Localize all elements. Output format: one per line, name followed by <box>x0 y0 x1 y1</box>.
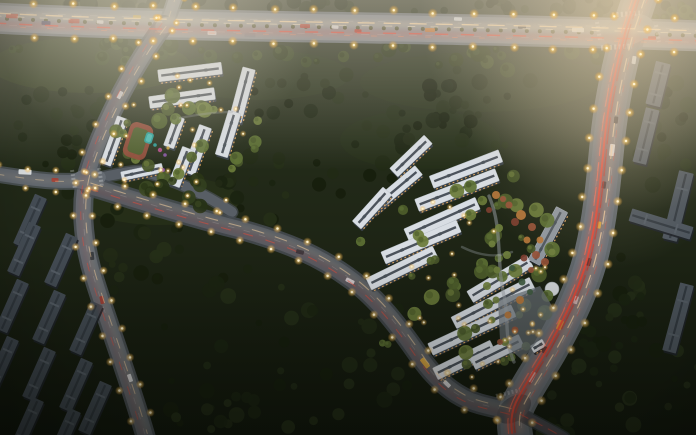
scene-svg <box>0 0 696 435</box>
vignette <box>0 0 696 435</box>
vignette-layer <box>0 0 696 435</box>
aerial-masterplan-render <box>0 0 696 435</box>
